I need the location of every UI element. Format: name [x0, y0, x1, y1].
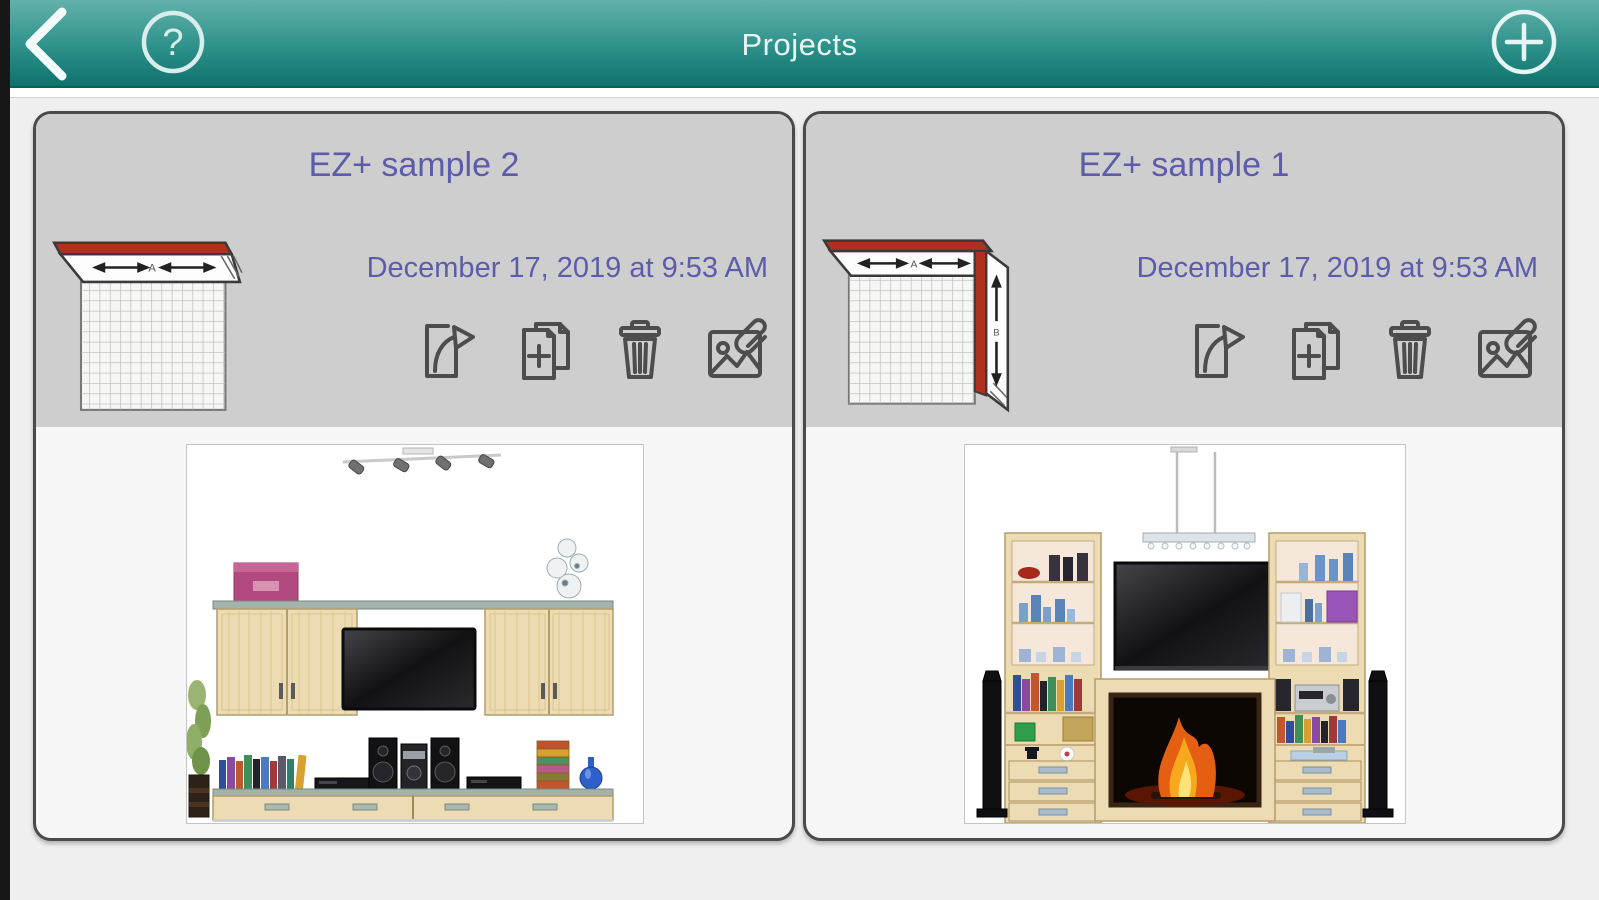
edit-photo-button[interactable]: [1472, 316, 1540, 384]
right-wall-cabinet: [485, 609, 613, 715]
floor-plan-thumbnail-corner-wall: A B: [818, 218, 1014, 414]
project-card-ez-sample-2[interactable]: EZ+ sample 2: [33, 111, 795, 841]
share-arrow-icon: [1184, 316, 1252, 384]
nav-bar: ? Projects: [0, 0, 1599, 88]
projects-screen: ? Projects EZ+ sample 2: [0, 0, 1599, 900]
media-player-left: [315, 778, 373, 789]
photo-paperclip-icon: [1472, 316, 1540, 384]
stacked-boxes: [537, 741, 569, 789]
stereo-system: [369, 738, 459, 789]
fireplace: [1095, 679, 1275, 821]
glass-decor: [547, 539, 588, 598]
floor-plan-thumbnail-single-wall: A: [48, 218, 244, 414]
left-wall-cabinet: [217, 609, 357, 715]
track-light: [343, 448, 501, 475]
page-title: Projects: [0, 0, 1599, 86]
left-bookcase-tower: [1005, 533, 1101, 823]
project-card-header: EZ+ sample 2: [36, 114, 792, 427]
duplicate-plus-icon: [1280, 316, 1348, 384]
screen-left-edge: [0, 0, 10, 900]
left-floor-speaker: [977, 671, 1007, 817]
project-title: EZ+ sample 1: [806, 114, 1562, 185]
lower-shelf: [213, 789, 613, 796]
trash-icon: [606, 316, 674, 384]
blue-vase: [580, 757, 602, 789]
duplicate-project-button[interactable]: [510, 316, 578, 384]
pink-storage-box: [234, 563, 298, 601]
media-player-right: [467, 777, 521, 789]
duplicate-plus-icon: [510, 316, 578, 384]
photo-paperclip-icon: [702, 316, 770, 384]
svg-text:B: B: [993, 328, 999, 338]
project-preview-fireplace-unit[interactable]: [964, 444, 1406, 824]
project-title: EZ+ sample 2: [36, 114, 792, 185]
project-date: December 17, 2019 at 9:53 AM: [1137, 252, 1538, 285]
add-project-button[interactable]: [1490, 8, 1558, 76]
svg-text:A: A: [148, 263, 156, 275]
project-card-header: EZ+ sample 1: [806, 114, 1562, 427]
svg-text:A: A: [910, 260, 917, 271]
project-actions: [1184, 316, 1540, 384]
nav-divider: [0, 88, 1599, 98]
project-card-body: [806, 427, 1562, 838]
project-card-ez-sample-1[interactable]: EZ+ sample 1: [803, 111, 1565, 841]
plus-icon: [1490, 8, 1558, 76]
edit-photo-button[interactable]: [702, 316, 770, 384]
duplicate-project-button[interactable]: [1280, 316, 1348, 384]
project-date: December 17, 2019 at 9:53 AM: [367, 252, 768, 285]
tower-drawers: [1273, 761, 1361, 821]
right-floor-speaker: [1363, 671, 1393, 817]
pendant-light: [1143, 447, 1255, 549]
project-preview-wall-unit[interactable]: [186, 444, 644, 824]
base-drawers: [213, 796, 613, 822]
share-arrow-icon: [414, 316, 482, 384]
right-bookcase-tower: [1269, 533, 1365, 823]
tv-screen: [343, 629, 475, 709]
delete-project-button[interactable]: [606, 316, 674, 384]
top-shelf: [213, 601, 613, 609]
project-card-body: [36, 427, 792, 838]
tv-screen: [1115, 563, 1287, 669]
books-row: [219, 755, 307, 790]
share-project-button[interactable]: [414, 316, 482, 384]
project-actions: [414, 316, 770, 384]
plant: [187, 680, 211, 817]
tower-drawers: [1009, 761, 1097, 821]
share-project-button[interactable]: [1184, 316, 1252, 384]
trash-icon: [1376, 316, 1444, 384]
delete-project-button[interactable]: [1376, 316, 1444, 384]
